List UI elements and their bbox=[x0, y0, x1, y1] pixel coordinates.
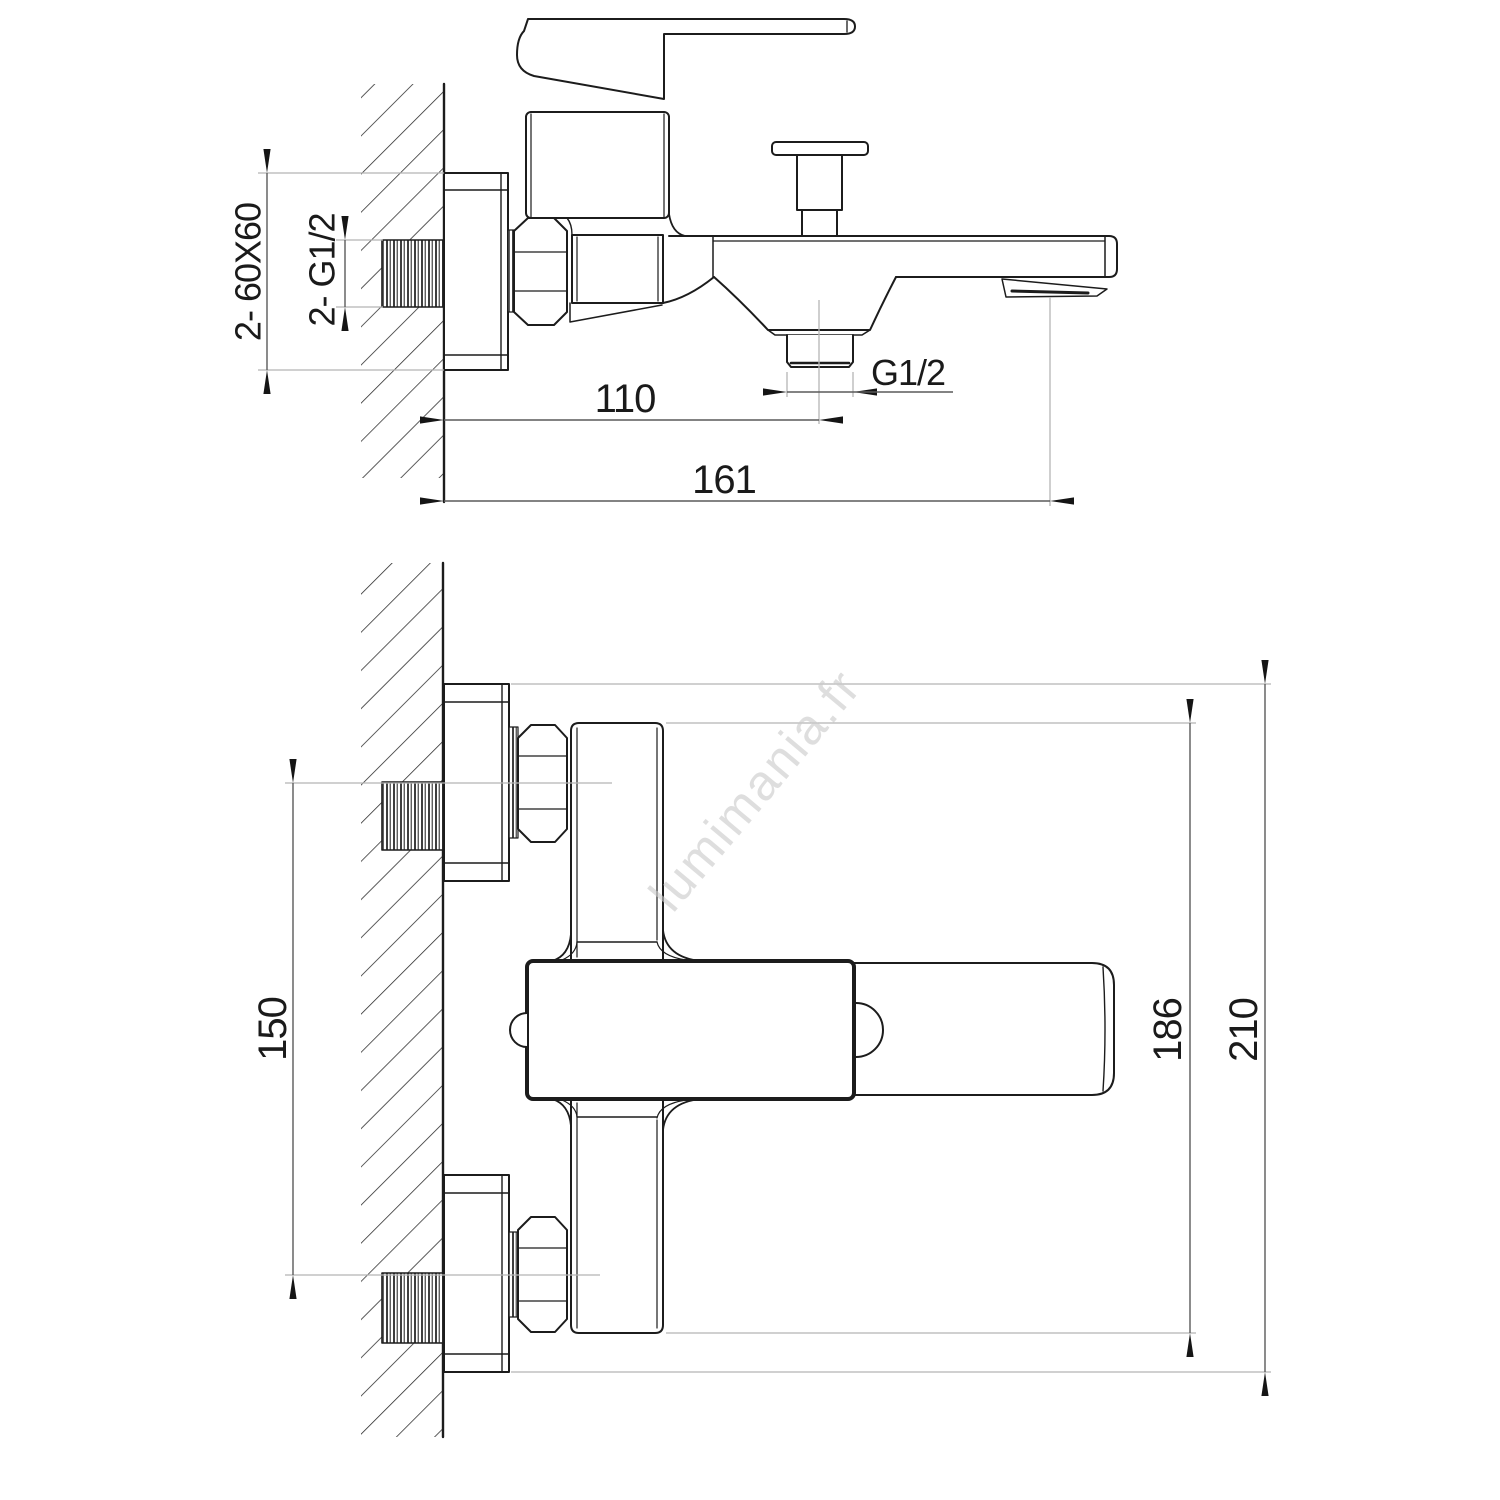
side-view bbox=[361, 19, 1117, 502]
lower-escutcheon-front bbox=[444, 1175, 509, 1372]
upper-inlet-nipple-front bbox=[382, 782, 443, 850]
faucet-dimension-drawing: 2- 60X60 2- G1/2 110 161 G1/2 bbox=[0, 0, 1500, 1500]
union-nut-side bbox=[514, 218, 567, 325]
side-plug-bump bbox=[510, 1013, 527, 1047]
dim-text-161: 161 bbox=[692, 458, 756, 502]
body-block-front bbox=[510, 961, 883, 1099]
dim-text-210: 210 bbox=[1222, 998, 1266, 1062]
dim-text-150: 150 bbox=[251, 997, 295, 1061]
dim-text-outlet-g12: G1/2 bbox=[871, 352, 945, 393]
dim-text-186: 186 bbox=[1146, 998, 1190, 1062]
watermark: lumimania.fr bbox=[638, 659, 871, 922]
inlet-nipple-side bbox=[382, 240, 443, 307]
body-inlet-block-side bbox=[570, 235, 663, 322]
dim-text-inlet-thread: 2- G1/2 bbox=[302, 213, 343, 326]
outlet-nipple-side bbox=[787, 335, 853, 367]
aerator-side bbox=[1002, 279, 1107, 297]
lower-inlet-nipple-front bbox=[382, 1273, 443, 1343]
escutcheon-side bbox=[444, 173, 508, 370]
lever-handle-front bbox=[854, 963, 1114, 1095]
technical-drawing-page: 2- 60X60 2- G1/2 110 161 G1/2 bbox=[0, 0, 1500, 1500]
diverter-knob-side bbox=[772, 142, 868, 236]
lever-handle-side bbox=[517, 19, 855, 99]
dim-text-plate: 2- 60X60 bbox=[228, 203, 269, 341]
front-view bbox=[361, 563, 1114, 1437]
dim-text-110: 110 bbox=[595, 377, 656, 421]
